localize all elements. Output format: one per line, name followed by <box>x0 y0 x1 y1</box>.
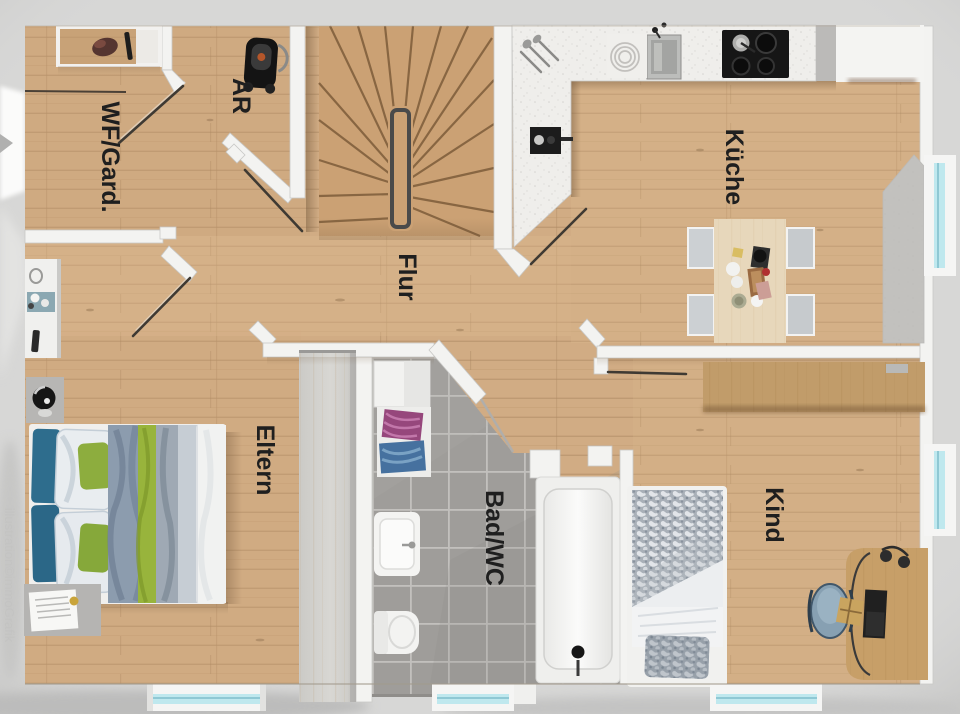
svg-text:AR: AR <box>227 78 255 114</box>
svg-text:Kind: Kind <box>760 487 788 543</box>
svg-text:Eltern: Eltern <box>251 425 279 496</box>
svg-text:Bad/WC: Bad/WC <box>480 490 508 586</box>
svg-text:WF/Gard.: WF/Gard. <box>96 101 124 212</box>
svg-text:illustration©immoGrafik: illustration©immoGrafik <box>2 508 17 643</box>
svg-text:Flur: Flur <box>393 253 421 300</box>
svg-text:Küche: Küche <box>720 129 748 206</box>
